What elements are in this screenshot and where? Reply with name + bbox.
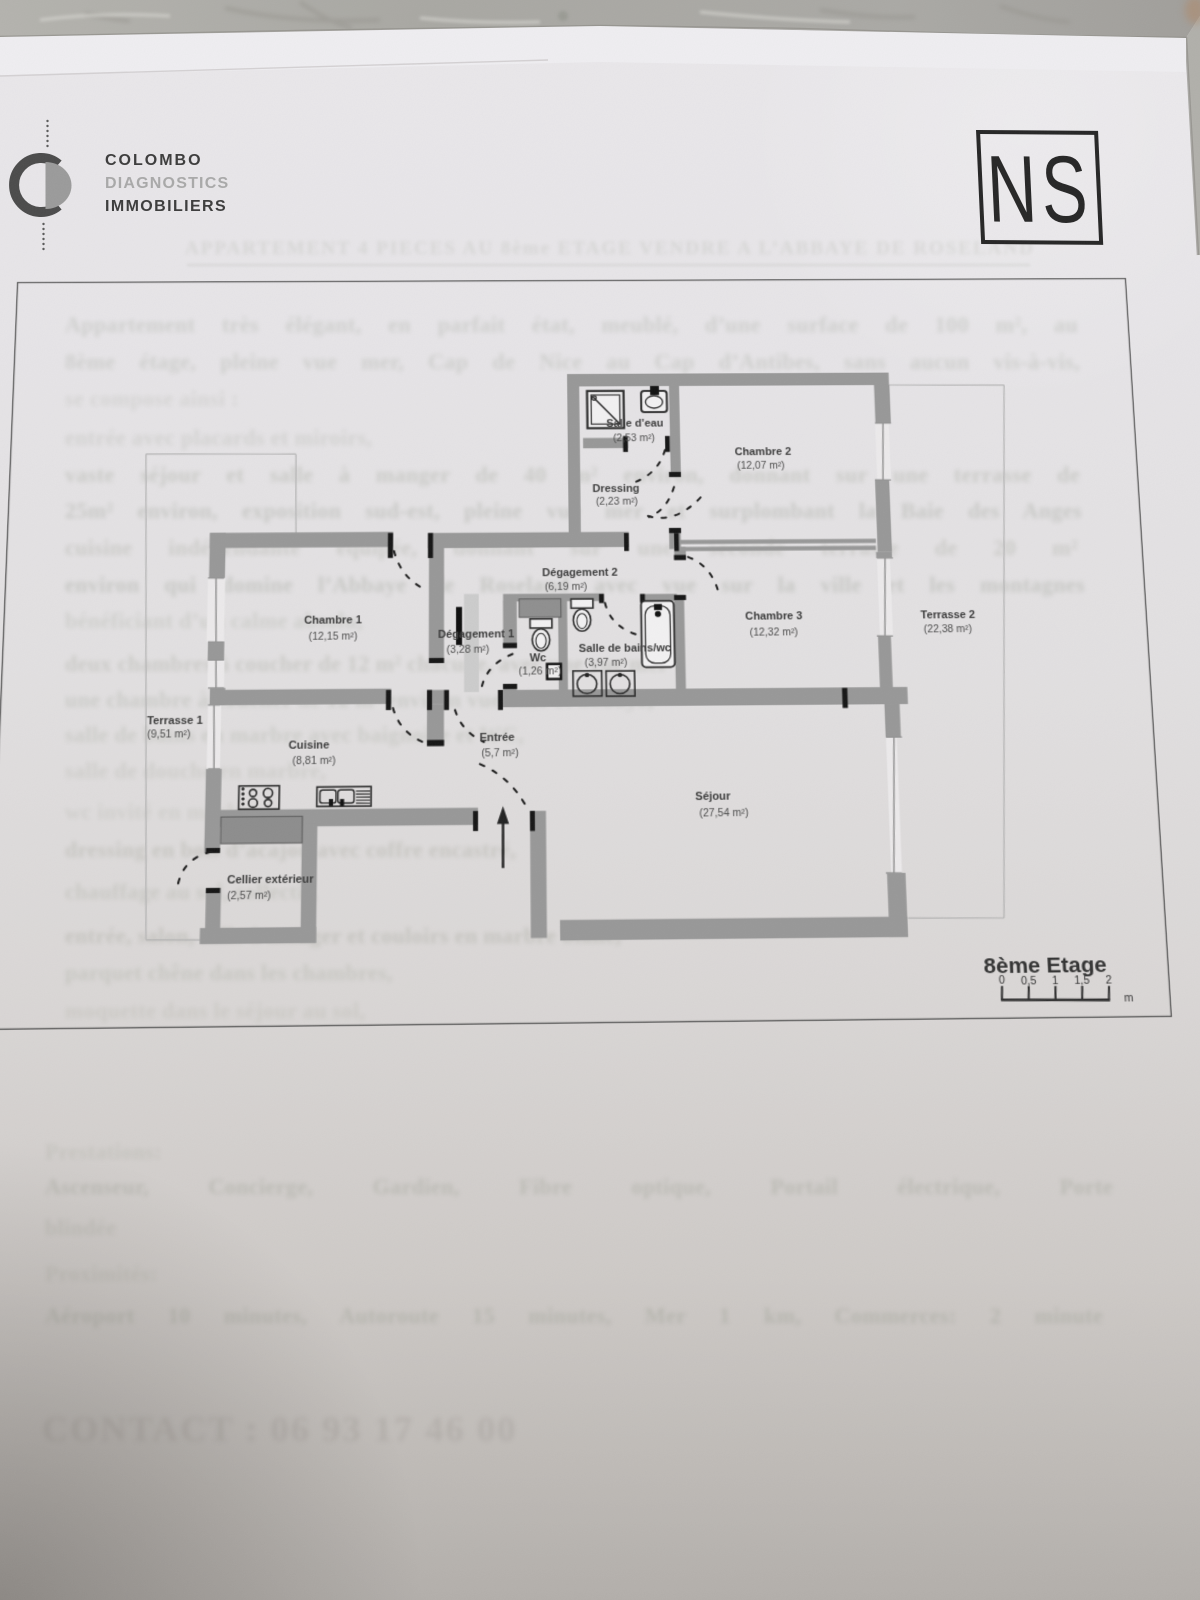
svg-text:Dressing: Dressing — [592, 484, 639, 495]
svg-text:Wc: Wc — [530, 653, 547, 665]
svg-text:(8,81 m²): (8,81 m²) — [292, 755, 336, 767]
svg-text:(1,26 m²): (1,26 m²) — [519, 666, 562, 678]
svg-text:Terrasse 1: Terrasse 1 — [147, 715, 203, 727]
svg-text:m: m — [1124, 993, 1134, 1005]
svg-text:Cellier extérieur: Cellier extérieur — [227, 875, 314, 888]
svg-text:(3,28 m²): (3,28 m²) — [447, 644, 490, 656]
svg-text:Dégagement 2: Dégagement 2 — [542, 568, 618, 580]
svg-text:(22,38 m²): (22,38 m²) — [924, 624, 973, 636]
svg-text:(5,7 m²): (5,7 m²) — [481, 747, 518, 759]
svg-text:0: 0 — [999, 975, 1006, 987]
svg-text:(2,53 m²): (2,53 m²) — [613, 433, 655, 444]
svg-text:(27,54 m²): (27,54 m²) — [699, 807, 748, 819]
svg-text:Chambre 1: Chambre 1 — [304, 615, 362, 627]
svg-text:1: 1 — [1052, 975, 1059, 987]
svg-text:2: 2 — [1105, 975, 1112, 987]
svg-text:(6,19 m²): (6,19 m²) — [545, 582, 588, 594]
svg-text:Entrée: Entrée — [479, 732, 514, 744]
svg-text:Séjour: Séjour — [695, 791, 730, 803]
svg-text:(2,23 m²): (2,23 m²) — [596, 497, 638, 508]
svg-text:Cuisine: Cuisine — [289, 740, 330, 752]
svg-text:Salle d’eau: Salle d’eau — [606, 419, 663, 430]
svg-text:(12,15 m²): (12,15 m²) — [309, 632, 358, 644]
svg-text:(12,07 m²): (12,07 m²) — [737, 461, 785, 472]
svg-text:Terrasse 2: Terrasse 2 — [920, 610, 975, 622]
svg-text:1,5: 1,5 — [1074, 975, 1090, 987]
svg-text:Dégagement 1: Dégagement 1 — [438, 629, 515, 641]
svg-text:0,5: 0,5 — [1021, 975, 1037, 987]
svg-text:(12,32 m²): (12,32 m²) — [750, 628, 799, 640]
svg-text:Chambre 2: Chambre 2 — [735, 447, 792, 458]
svg-text:(3,97 m²): (3,97 m²) — [585, 657, 628, 669]
svg-text:Salle de bains/wc: Salle de bains/wc — [579, 643, 672, 655]
svg-text:Chambre 3: Chambre 3 — [745, 612, 803, 624]
svg-text:(9,51 m²): (9,51 m²) — [147, 729, 191, 741]
svg-text:(2,57 m²): (2,57 m²) — [227, 890, 271, 902]
